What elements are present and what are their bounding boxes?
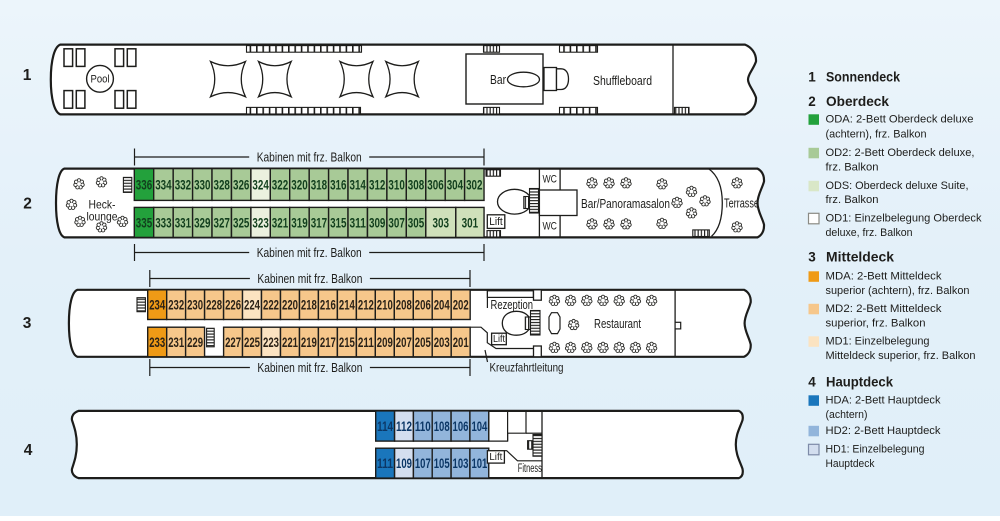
svg-text:201: 201: [453, 335, 469, 350]
svg-text:314: 314: [350, 178, 367, 193]
svg-text:OD2: 2-Bett Oberdeck deluxe,: OD2: 2-Bett Oberdeck deluxe,: [826, 147, 975, 159]
svg-text:Mitteldeck: Mitteldeck: [826, 250, 894, 265]
svg-text:330: 330: [194, 178, 210, 193]
svg-text:305: 305: [408, 215, 425, 230]
svg-text:329: 329: [194, 215, 210, 230]
svg-text:320: 320: [291, 178, 307, 193]
svg-text:323: 323: [252, 215, 269, 230]
svg-text:Kabinen mit frz. Balkon: Kabinen mit frz. Balkon: [257, 272, 362, 286]
svg-text:214: 214: [339, 298, 355, 313]
svg-text:112: 112: [396, 419, 412, 434]
svg-text:Lift: Lift: [493, 333, 505, 345]
svg-text:Hauptdeck: Hauptdeck: [826, 458, 875, 470]
svg-text:321: 321: [272, 215, 289, 230]
svg-text:311: 311: [350, 215, 367, 230]
svg-text:Lift: Lift: [489, 451, 502, 463]
svg-text:230: 230: [187, 298, 203, 313]
svg-text:332: 332: [175, 178, 191, 193]
svg-text:324: 324: [252, 178, 269, 193]
svg-text:331: 331: [175, 215, 192, 230]
svg-text:Bar: Bar: [490, 73, 506, 87]
svg-text:superior, frz. Balkon: superior, frz. Balkon: [826, 317, 926, 329]
svg-text:Oberdeck: Oberdeck: [826, 94, 889, 109]
svg-text:Sonnendeck: Sonnendeck: [826, 70, 900, 85]
svg-text:1: 1: [808, 70, 816, 85]
svg-text:2: 2: [808, 94, 816, 109]
svg-text:209: 209: [377, 335, 393, 350]
svg-text:317: 317: [311, 215, 327, 230]
svg-text:deluxe, frz. Balkon: deluxe, frz. Balkon: [826, 227, 913, 239]
svg-text:1: 1: [23, 67, 32, 84]
svg-text:234: 234: [149, 298, 165, 313]
svg-text:202: 202: [453, 298, 469, 313]
svg-text:Kreuzfahrtleitung: Kreuzfahrtleitung: [490, 360, 564, 374]
svg-text:231: 231: [168, 335, 184, 350]
svg-text:205: 205: [415, 335, 431, 350]
svg-text:Lift: Lift: [489, 216, 503, 228]
svg-text:206: 206: [415, 298, 431, 313]
svg-text:MD2: 2-Bett Mitteldeck: MD2: 2-Bett Mitteldeck: [826, 303, 942, 315]
svg-text:4: 4: [808, 375, 816, 390]
svg-text:319: 319: [291, 215, 307, 230]
svg-text:229: 229: [187, 335, 203, 350]
svg-text:109: 109: [396, 456, 412, 471]
svg-text:(achtern): (achtern): [826, 409, 868, 421]
svg-text:216: 216: [320, 298, 336, 313]
svg-text:315: 315: [330, 215, 347, 230]
svg-text:(achtern), frz. Balkon: (achtern), frz. Balkon: [826, 128, 927, 140]
svg-text:101: 101: [471, 456, 487, 471]
svg-text:Kabinen mit frz. Balkon: Kabinen mit frz. Balkon: [257, 246, 362, 260]
svg-text:210: 210: [377, 298, 393, 313]
svg-text:107: 107: [415, 456, 431, 471]
svg-text:Restaurant: Restaurant: [594, 316, 641, 331]
svg-text:208: 208: [396, 298, 412, 313]
svg-text:104: 104: [471, 419, 487, 434]
svg-text:superior (achtern), frz. Balko: superior (achtern), frz. Balkon: [826, 285, 970, 297]
svg-text:222: 222: [263, 298, 279, 313]
svg-text:WC: WC: [542, 174, 557, 186]
svg-text:frz. Balkon: frz. Balkon: [826, 161, 879, 173]
svg-text:224: 224: [244, 298, 260, 313]
svg-text:frz. Balkon: frz. Balkon: [826, 194, 879, 206]
svg-text:221: 221: [282, 335, 298, 350]
svg-text:316: 316: [330, 178, 347, 193]
svg-text:336: 336: [136, 178, 153, 193]
svg-text:Bar/Panoramasalon: Bar/Panoramasalon: [581, 196, 670, 211]
svg-text:HD1: Einzelbelegung: HD1: Einzelbelegung: [826, 444, 925, 456]
svg-text:Mitteldeck superior, frz. Balk: Mitteldeck superior, frz. Balkon: [826, 350, 976, 362]
svg-text:211: 211: [358, 335, 374, 350]
svg-text:322: 322: [272, 178, 288, 193]
svg-text:215: 215: [339, 335, 355, 350]
svg-text:Kabinen mit frz. Balkon: Kabinen mit frz. Balkon: [257, 361, 362, 375]
svg-text:3: 3: [808, 250, 816, 265]
svg-text:219: 219: [301, 335, 317, 350]
svg-text:307: 307: [388, 215, 404, 230]
svg-text:105: 105: [434, 456, 450, 471]
svg-text:220: 220: [282, 298, 298, 313]
svg-text:Hauptdeck: Hauptdeck: [826, 375, 893, 390]
svg-text:HD2: 2-Bett Hauptdeck: HD2: 2-Bett Hauptdeck: [826, 425, 941, 437]
svg-text:2: 2: [23, 196, 32, 213]
svg-text:223: 223: [263, 335, 279, 350]
svg-text:301: 301: [462, 215, 479, 230]
svg-text:OD1: Einzelbelegung Oberdeck: OD1: Einzelbelegung Oberdeck: [826, 213, 982, 225]
svg-text:ODS: Oberdeck deluxe Suite,: ODS: Oberdeck deluxe Suite,: [826, 180, 969, 192]
svg-text:MD1: Einzelbelegung: MD1: Einzelbelegung: [826, 336, 930, 348]
svg-text:302: 302: [466, 178, 482, 193]
svg-text:Fitness: Fitness: [518, 463, 542, 475]
svg-text:4: 4: [24, 442, 33, 459]
svg-text:308: 308: [408, 178, 425, 193]
svg-text:3: 3: [23, 315, 32, 332]
svg-text:207: 207: [396, 335, 412, 350]
svg-text:325: 325: [233, 215, 250, 230]
svg-text:217: 217: [320, 335, 336, 350]
svg-text:Rezeption: Rezeption: [491, 297, 534, 312]
svg-text:312: 312: [369, 178, 385, 193]
svg-text:306: 306: [427, 178, 444, 193]
svg-text:WC: WC: [542, 221, 557, 233]
svg-text:303: 303: [433, 215, 450, 230]
svg-text:310: 310: [388, 178, 404, 193]
svg-text:203: 203: [434, 335, 450, 350]
svg-text:114: 114: [377, 419, 393, 434]
svg-text:335: 335: [136, 215, 153, 230]
svg-text:333: 333: [155, 215, 172, 230]
svg-text:110: 110: [415, 419, 431, 434]
svg-text:Kabinen mit frz. Balkon: Kabinen mit frz. Balkon: [257, 151, 362, 165]
svg-text:327: 327: [214, 215, 230, 230]
svg-text:204: 204: [434, 298, 450, 313]
svg-text:228: 228: [206, 298, 222, 313]
svg-text:HDA: 2-Bett Hauptdeck: HDA: 2-Bett Hauptdeck: [826, 395, 941, 407]
svg-text:226: 226: [225, 298, 241, 313]
svg-text:304: 304: [447, 178, 464, 193]
svg-text:225: 225: [244, 335, 260, 350]
svg-text:Pool: Pool: [91, 73, 110, 85]
svg-text:Shuffleboard: Shuffleboard: [593, 73, 652, 88]
svg-text:232: 232: [168, 298, 184, 313]
svg-text:103: 103: [453, 456, 469, 471]
svg-text:318: 318: [311, 178, 328, 193]
svg-text:111: 111: [377, 456, 393, 471]
svg-text:309: 309: [369, 215, 385, 230]
svg-text:108: 108: [434, 419, 450, 434]
svg-text:227: 227: [225, 335, 241, 350]
svg-text:ODA: 2-Bett Oberdeck deluxe: ODA: 2-Bett Oberdeck deluxe: [826, 114, 974, 126]
svg-text:212: 212: [358, 298, 374, 313]
svg-text:218: 218: [301, 298, 317, 313]
svg-text:233: 233: [149, 335, 165, 350]
svg-text:328: 328: [214, 178, 231, 193]
svg-text:Terrasse: Terrasse: [724, 196, 759, 210]
svg-text:334: 334: [155, 178, 172, 193]
svg-text:106: 106: [453, 419, 469, 434]
svg-text:MDA: 2-Bett Mitteldeck: MDA: 2-Bett Mitteldeck: [826, 271, 942, 283]
svg-text:326: 326: [233, 178, 250, 193]
